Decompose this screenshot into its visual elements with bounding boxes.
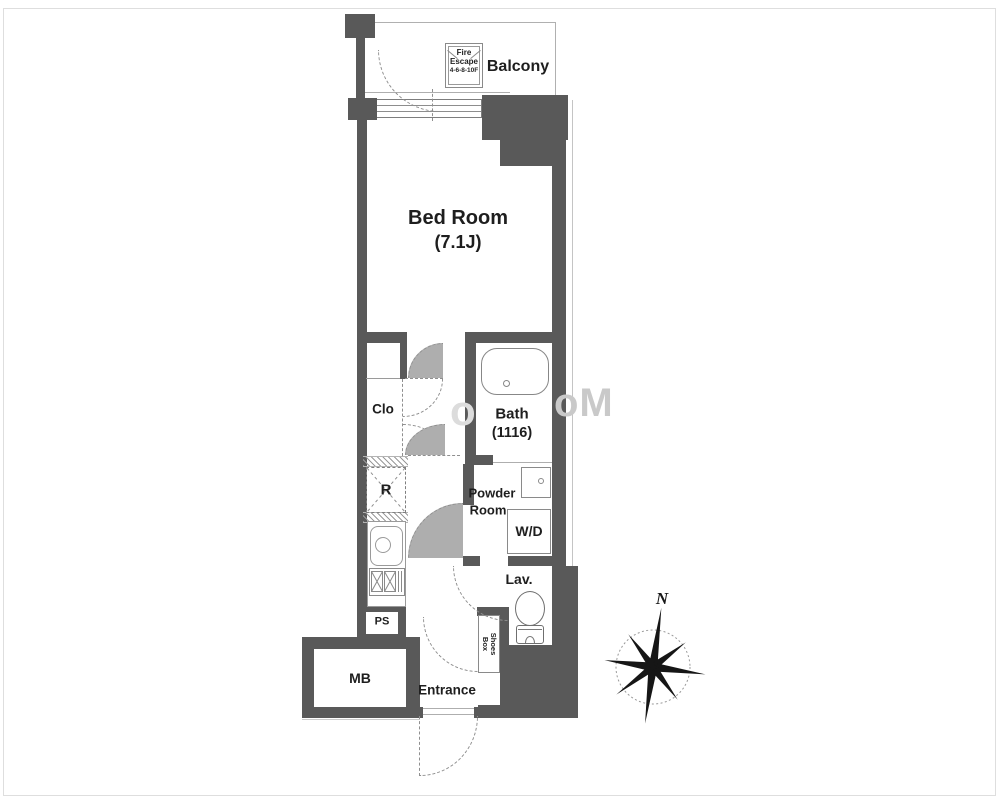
closet-door-swing bbox=[403, 379, 443, 417]
powder-room-label-1: Powder bbox=[469, 487, 516, 500]
entrance-label: Entrance bbox=[418, 683, 476, 697]
wall-segment bbox=[357, 120, 367, 643]
threshold-line bbox=[423, 714, 474, 715]
wall-segment bbox=[463, 556, 480, 566]
washbasin bbox=[521, 467, 551, 498]
shoes-box-label-1: Shoes bbox=[489, 633, 497, 656]
hall-dashed-line bbox=[408, 455, 460, 456]
entrance-door-leaf bbox=[419, 716, 420, 776]
bath-size-label: (1116) bbox=[492, 426, 532, 441]
bottom-outer-line bbox=[302, 719, 420, 720]
entrance-door-swing bbox=[420, 716, 478, 776]
compass-rose: N bbox=[596, 585, 721, 725]
bedroom-door-swing bbox=[408, 343, 443, 378]
hatch-strip bbox=[363, 456, 408, 467]
bathtub bbox=[481, 348, 549, 395]
wall-segment bbox=[482, 95, 568, 140]
washbasin-drain bbox=[538, 478, 544, 484]
stove-icon bbox=[369, 568, 405, 596]
wall-segment bbox=[356, 36, 365, 100]
toilet-bowl bbox=[515, 591, 545, 626]
powder-door-swing bbox=[408, 503, 463, 558]
bath-bottom-line bbox=[493, 462, 552, 463]
wall-segment bbox=[348, 98, 377, 120]
washer-dryer-label: W/D bbox=[515, 524, 542, 538]
floor-plan: Fire Escape 4-6-8-10F bbox=[0, 0, 999, 801]
fire-escape-line3: 4-6-8-10F bbox=[448, 66, 480, 75]
sink-drain-circle bbox=[375, 537, 391, 553]
shoes-box-label-2: Box bbox=[481, 633, 489, 656]
wall-segment bbox=[508, 556, 552, 566]
shoes-box-door-swing bbox=[423, 617, 478, 672]
window-jamb bbox=[481, 99, 482, 118]
bedroom-label: Bed Room bbox=[408, 208, 508, 228]
bathtub-drain bbox=[503, 380, 510, 387]
meter-box-label: MB bbox=[349, 671, 371, 685]
fire-escape-line2: Escape bbox=[448, 57, 480, 66]
refrigerator-label: R bbox=[381, 483, 392, 498]
pipe-space-label: PS bbox=[375, 617, 390, 628]
wall-segment bbox=[345, 14, 375, 38]
wall-segment bbox=[500, 616, 509, 718]
lavatory-door-swing bbox=[453, 566, 508, 621]
bedroom-size-label: (7.1J) bbox=[434, 233, 481, 251]
closet-divider-line bbox=[366, 378, 400, 379]
wall-segment bbox=[552, 140, 566, 566]
fire-escape-text: Fire Escape 4-6-8-10F bbox=[448, 48, 480, 75]
compass-north-label: N bbox=[655, 589, 669, 608]
watermark: o bbox=[450, 390, 477, 432]
toilet-seat-line bbox=[518, 629, 542, 630]
threshold-line bbox=[423, 708, 474, 709]
wall-segment bbox=[365, 332, 407, 343]
closet-front-wall bbox=[400, 343, 407, 379]
closet-label: Clo bbox=[372, 402, 394, 416]
bath-label: Bath bbox=[495, 407, 528, 422]
wall-segment bbox=[509, 645, 578, 718]
toilet-notch bbox=[525, 636, 535, 643]
shoes-box-label: Shoes Box bbox=[481, 633, 497, 656]
powder-room-label-2: Room bbox=[470, 504, 507, 517]
watermark: oM bbox=[554, 383, 614, 423]
lavatory-label: Lav. bbox=[506, 572, 533, 586]
balcony-label: Balcony bbox=[487, 59, 549, 75]
fire-escape-line1: Fire bbox=[448, 48, 480, 57]
wall-segment bbox=[465, 332, 552, 343]
